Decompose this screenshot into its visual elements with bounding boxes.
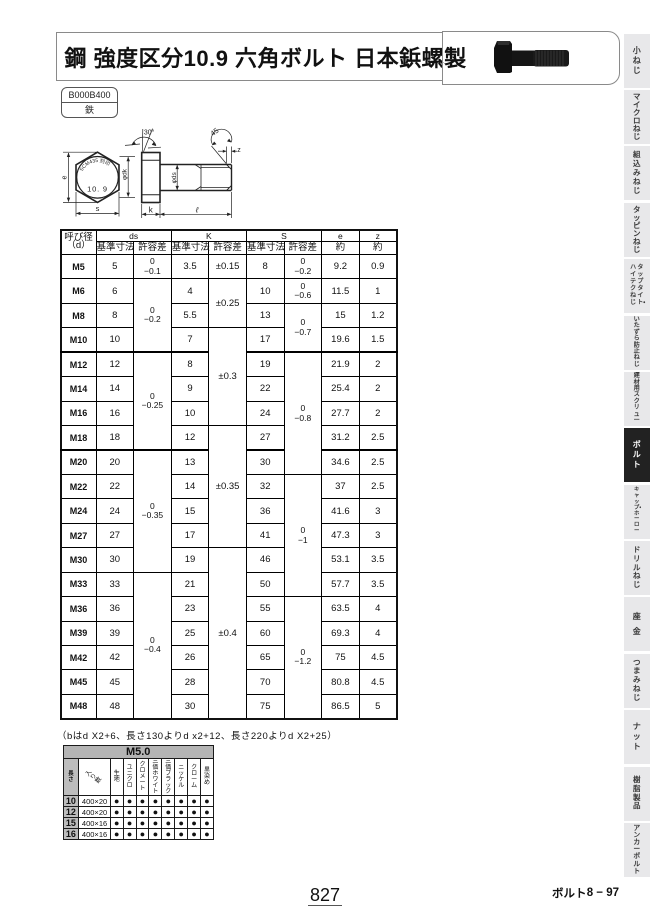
svg-text:30°: 30° (144, 129, 155, 137)
svg-text:φdk: φdk (121, 168, 128, 180)
svg-text:s: s (96, 204, 100, 213)
svg-text:45: 45 (208, 126, 220, 138)
svg-text:e: e (62, 175, 69, 179)
svg-text:10. 9: 10. 9 (87, 185, 108, 194)
svg-text:φds: φds (171, 172, 178, 184)
svg-text:k: k (149, 205, 154, 214)
svg-text:z: z (237, 147, 241, 154)
svg-text:ℓ: ℓ (195, 205, 199, 214)
